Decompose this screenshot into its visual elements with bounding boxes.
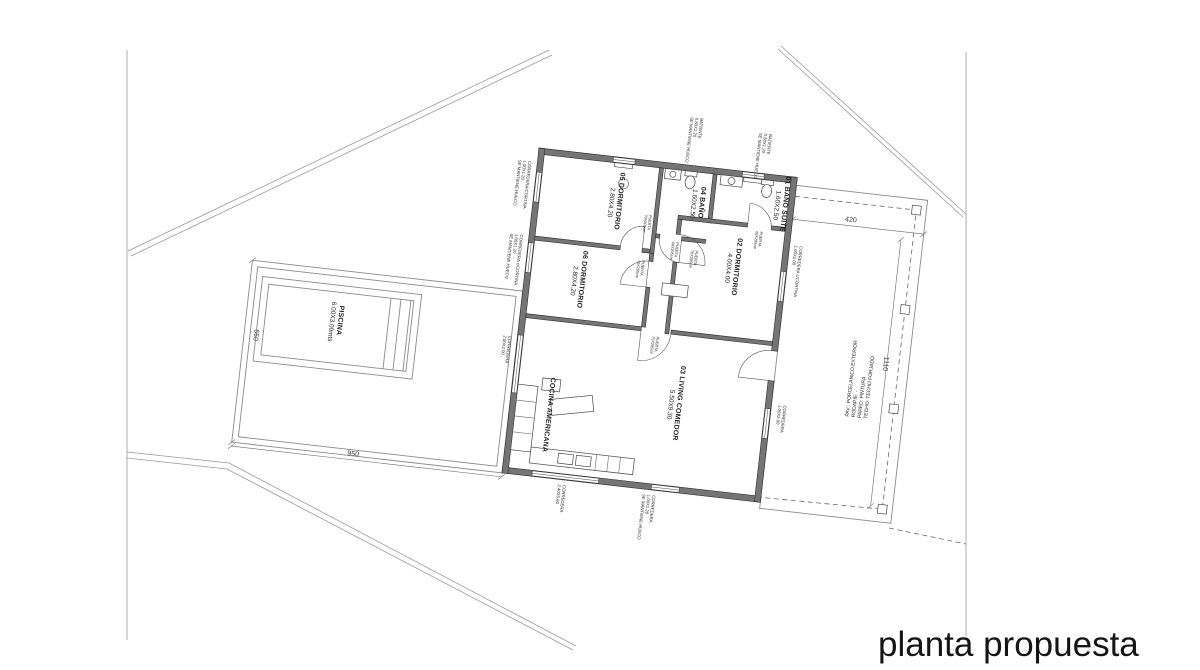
hall-closet (661, 283, 688, 298)
dim-420: 420 (845, 216, 858, 224)
road-top-left-outer (128, 50, 549, 251)
vanity-suite-icon (720, 175, 743, 187)
door-suite (747, 203, 774, 230)
window-label-corredera-cortina-1: CORREDERA/CORTINA 1.00X1.20 SE MANTIENE … (512, 160, 532, 210)
kitchen-island (550, 395, 593, 415)
toilet-suite-icon (760, 179, 774, 198)
kitchen-counters (509, 375, 642, 474)
room-label-06: 06 DORMITORIO 2.80X4.20 (567, 250, 597, 314)
wall-04-bottom-l (656, 234, 660, 238)
vanity-04-icon (664, 168, 681, 180)
room-label-02: 02 DORMITORIO 4.00X4.00 (721, 237, 751, 301)
window-label-corredera-kitchen-bottom: CORREDERA 2.40X0.60 (554, 484, 567, 513)
terrace-column (877, 504, 887, 514)
floor-plan-canvas: 950 650 PISCINA 6.00X3.00mts (0, 0, 1200, 670)
door-label-6: PUERTA 75X205cm (649, 336, 659, 355)
wall-living-r (671, 330, 773, 346)
room-label-03: 03 LIVING COMEDOR 5.50X9.30 (662, 365, 694, 447)
road-top-right-outer (781, 46, 966, 214)
window-label-corredera-02: CORREDERA c/CORTINA 1.00X2.00 (788, 245, 804, 298)
wall-06-right-d (641, 287, 650, 327)
wall-living-l (526, 314, 642, 331)
terrace-column (889, 404, 899, 414)
door-label-3: PUERTA 70X205cm (688, 250, 698, 269)
window-label-corredera-living-bottom: CORREDERA 1.00X1.20 SE MANTIENE HUECO (636, 494, 656, 542)
plan-rotated-group: 950 650 PISCINA 6.00X3.00mts (223, 69, 937, 569)
wall-05-06-l (535, 236, 621, 250)
wall-05-06-r (642, 248, 650, 253)
dim-line-1110 (871, 240, 901, 506)
dim-line-420 (793, 219, 924, 234)
terrace-finish-note: PAV : PORCELANICO EXTERIOR RODAPIE: - PA… (836, 335, 879, 420)
site-boundaries (127, 46, 966, 650)
sink-icon (557, 453, 573, 465)
room-label-05: 05 DORMITORIO 2.80X4.20 (604, 171, 634, 235)
wall-04-suite (708, 174, 718, 223)
road-top-right-inner (778, 49, 963, 217)
terrace-column (911, 205, 921, 215)
road-bottom-left-outer (127, 452, 576, 646)
boundary-dashed-corner (889, 528, 966, 544)
door-label-1: PUERTA 70X205cm (642, 214, 652, 233)
wall-right-lower (754, 380, 774, 502)
door-label-4: PUERTA 60X205cm (753, 231, 763, 250)
window-label-batiente-1: BATIENTE 0.80X1.20 SE MANTIENE HUECO (684, 117, 704, 165)
page-title: planta propuesta (878, 625, 1139, 664)
pool-label: PISCINA 6.00X3.00mts (326, 301, 353, 344)
road-top-left-inner (131, 55, 552, 256)
wall-06-right-u (649, 253, 654, 261)
window-label-corredera-cortina-2: CORREDERA c/CORTINA 1.00X1.20 SE MANTIEN… (503, 233, 524, 286)
pool: PISCINA 6.00X3.00mts (253, 277, 422, 380)
door-label-2: PUERTA 60X205cm (669, 242, 679, 261)
floor-plan-page: { "page_title": "planta propuesta", "roo… (0, 0, 1200, 670)
dim-line-950 (231, 446, 501, 477)
toilet-04-icon (683, 171, 697, 190)
wall-02-left-d (665, 262, 677, 334)
window-label-corredera-kitchen: CORREDERA 2.00X2.00 (499, 335, 512, 364)
terrace-column (900, 304, 910, 314)
wall-05-hall (650, 168, 664, 254)
wall-02-left-u (676, 219, 682, 234)
sink-icon (575, 455, 591, 467)
parcel: 950 650 (228, 257, 526, 480)
road-bottom-left-inner (127, 458, 573, 650)
door-05 (620, 224, 644, 248)
window-bottom-1 (532, 471, 599, 484)
window-label-corredera-living: CORREDERA 1.00X2.00 (774, 405, 787, 434)
dim-950: 950 (347, 450, 360, 458)
door-entrance (738, 347, 771, 380)
dim-1110: 1110 (881, 356, 890, 371)
